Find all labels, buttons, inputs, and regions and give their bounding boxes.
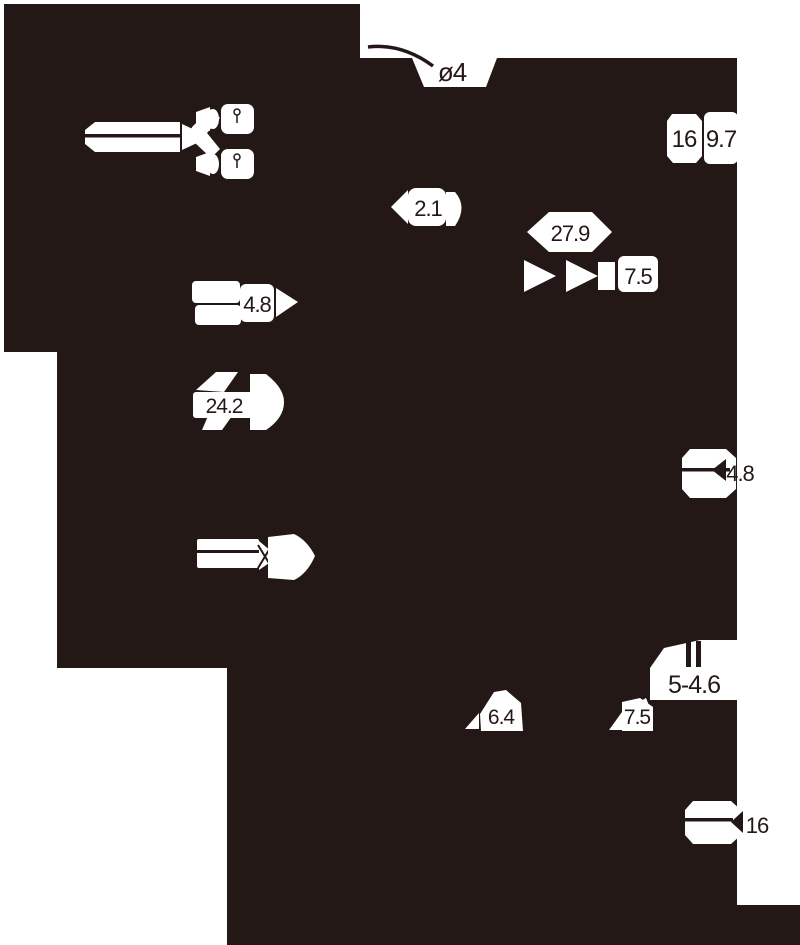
callout-bottom-height: 7.5 [609, 698, 653, 731]
cord-arrow [391, 190, 408, 224]
hole-pin-2 [696, 641, 701, 667]
dim-body-height: 7.5 [624, 264, 652, 289]
callout-left-length: 24.2 [193, 372, 284, 430]
callout-body-length: 27.9 [527, 212, 612, 252]
length-chevron-lower [202, 416, 232, 430]
arrow-tail [598, 262, 615, 290]
dim-left-length: 24.2 [206, 395, 243, 418]
length-body-blob [250, 374, 284, 430]
callout-top-right: 16 9.7 [667, 112, 738, 164]
callout-body-height: 7.5 [524, 256, 658, 292]
dim-plug-diameter: ø4 [438, 57, 467, 87]
left-blob-top [192, 281, 240, 303]
earphone-drawing [85, 104, 254, 179]
dim-left-width: 4.8 [243, 292, 271, 317]
callout-bottom-width: 6.4 [465, 690, 523, 731]
bottom-width-arrow [465, 713, 479, 729]
eartip-bullet [268, 534, 315, 580]
callout-plug-diameter: ø4 [368, 46, 497, 87]
dim-cord-width: 2.1 [414, 196, 442, 221]
left-arrow [276, 288, 298, 317]
drawing-overlay: ø4 16 9.7 2.1 27.9 7.5 [0, 0, 800, 945]
callout-cord: 2.1 [391, 188, 462, 226]
bottom-right-line [685, 818, 733, 822]
dimension-diagram: ø4 16 9.7 2.1 27.9 7.5 [0, 0, 800, 945]
left-blob-bottom [195, 305, 241, 325]
eartip-stem [197, 539, 259, 568]
cord-cap [446, 192, 462, 226]
dim-top-right-width: 16 [672, 126, 697, 153]
dim-bottom-height: 7.5 [624, 706, 651, 729]
dim-bottom-width: 6.4 [488, 706, 516, 729]
callout-left-width: 4.8 [192, 281, 298, 325]
dim-bottom-right-width: 16 [746, 813, 769, 838]
bottom-height-arrow [609, 712, 624, 730]
earbud-upper-tip [207, 109, 219, 129]
arrow-2 [566, 260, 598, 292]
eartip-side-view [197, 534, 315, 580]
length-chevron-upper [196, 372, 238, 392]
dim-right-width: 4.8 [726, 461, 754, 486]
hole-pin-1 [686, 641, 691, 667]
cable-barrel-split-line [85, 134, 180, 138]
callout-right-width: 4.8 [682, 449, 755, 498]
callout-bottom-right-width: 16 [685, 801, 769, 844]
eartip-stem-line [197, 550, 259, 553]
dim-hole-spec: 5-4.6 [668, 671, 720, 699]
dim-body-length: 27.9 [551, 221, 591, 246]
earbud-lower-tip [207, 154, 219, 174]
arrow-1 [524, 260, 556, 292]
dim-top-right-depth: 9.7 [706, 126, 737, 153]
